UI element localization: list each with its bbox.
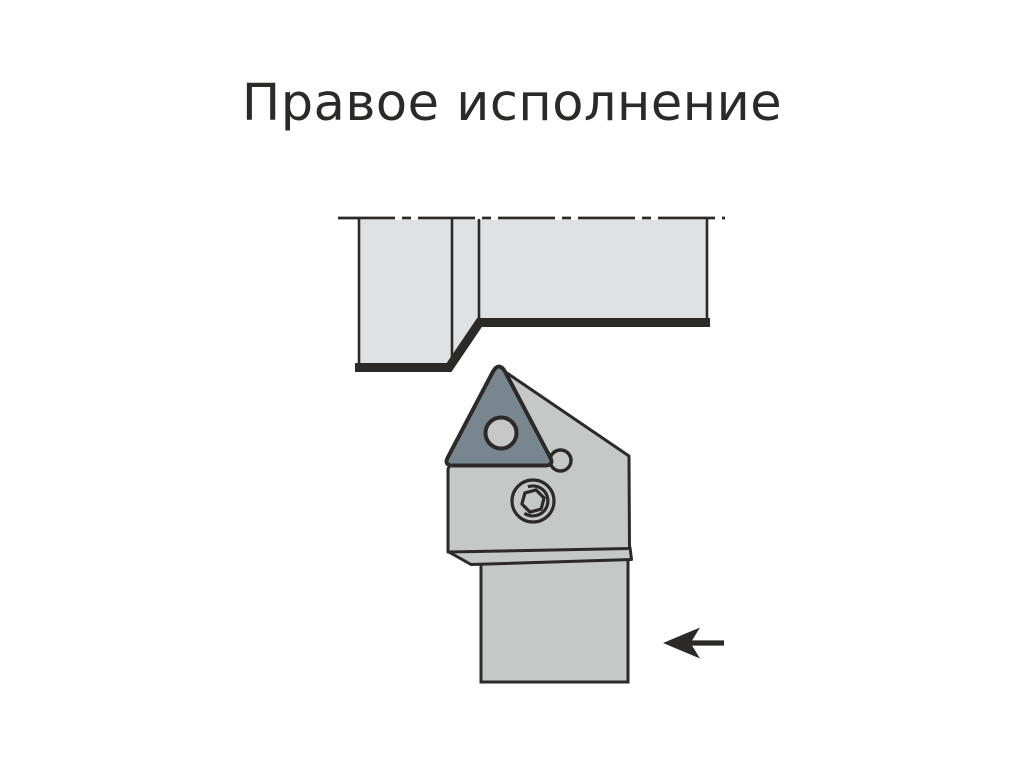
workpiece-body [359, 220, 707, 367]
feed-direction-arrow-icon [663, 628, 724, 659]
turning-tool-diagram [0, 0, 1024, 768]
holder-shank [481, 558, 628, 682]
insert-hole [486, 418, 517, 449]
diagram-page: Правое исполнение [0, 0, 1024, 768]
diagram-canvas [0, 0, 1024, 768]
workpiece [338, 218, 725, 368]
